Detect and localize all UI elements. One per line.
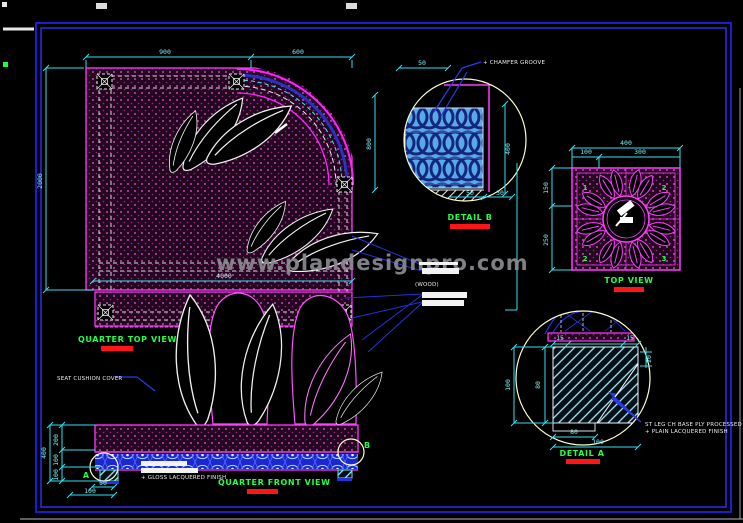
dim-db-top: 50 [418,59,426,67]
note-detail-a-line-1: ST LEG CH BASE PLY PROCESSED [645,422,742,428]
redacted-text-bar [422,268,459,274]
redacted-text-bar [141,468,198,473]
top-view-drawing [505,145,683,310]
quadrant-number-2: 2 [662,184,667,192]
dim-db-bottom-2: 30 [496,189,504,197]
note-detail-a-line-2: + PLAIN LACQUERED FINISH [645,429,728,435]
dim-db-left: 800 [365,138,373,150]
dim-qfv-total: 400 [40,447,48,459]
dim-da-bottom-2: 100 [592,438,604,446]
watermark-text: www.plandesignpro.com [216,251,529,275]
dim-da-left: 100 [504,379,512,391]
redacted-text-bar [422,300,464,306]
quadrant-number-4: 3 [662,255,667,263]
dim-tv-side-bottom: 250 [542,234,550,246]
redacted-text-bar [141,461,187,466]
note-wood: (WOOD) [415,282,439,288]
dim-qfv-band: 100 [52,454,60,466]
dim-qfv-seat: 200 [52,434,60,446]
label-underline [450,224,490,229]
dim-tv-left: 100 [580,148,592,156]
label-quarter-top-view: QUARTER TOP VIEW [78,335,177,344]
dim-da-top-1: 15 [556,334,564,342]
redacted-text-bar [422,292,467,298]
label-underline [247,489,278,494]
note-front-finish: + GLOSS LACQUERED FINISH [141,475,226,481]
dim-qtv-width: 4000 [216,272,232,280]
detail-a-drawing [511,302,652,450]
detail-b-drawing [372,62,526,202]
quadrant-number-1: 1 [583,184,588,192]
dim-qfv-leg: 100 [52,469,60,481]
note-seat-cushion-cover: SEAT CUSHION COVER [57,376,122,382]
dim-da-right: 20 [645,355,653,363]
label-top-view: TOP VIEW [604,276,653,285]
dim-qtv-top-2: 600 [292,48,304,56]
dim-qtv-top-1: 900 [159,48,171,56]
label-quarter-front-view: QUARTER FRONT VIEW [218,478,331,487]
dim-qfv-leg-w: 50 [99,479,107,487]
note-detail-b: + CHAMFER GROOVE [483,60,545,66]
dim-qtv-side: 2000 [36,173,44,189]
label-underline [566,459,600,464]
dim-da-bottom-1: 80 [570,428,578,436]
label-detail-b: DETAIL B [448,213,493,222]
label-underline [614,287,644,292]
dim-tv-right: 300 [634,148,646,156]
dim-qfv-leg-off: 100 [84,487,96,495]
redacted-text-bar [419,262,458,265]
dim-db-right: 400 [504,143,512,155]
cad-sheet: www.plandesignpro.com QUARTER TOP VIEW Q… [0,0,743,523]
detail-marker-b: B [364,441,370,450]
drawing-canvas: www.plandesignpro.com QUARTER TOP VIEW Q… [0,0,743,523]
dim-db-bottom-1: 50 [466,189,474,197]
dim-da-inner: 80 [534,381,542,389]
dim-da-top-2: 15 [626,334,634,342]
label-underline [101,346,133,351]
label-detail-a: DETAIL A [560,449,605,458]
quadrant-number-3: 2 [583,255,588,263]
dim-tv-side-top: 150 [542,182,550,194]
detail-marker-a: A [83,471,90,480]
quarter-top-view-drawing [86,66,383,327]
dim-tv-total: 400 [620,139,632,147]
